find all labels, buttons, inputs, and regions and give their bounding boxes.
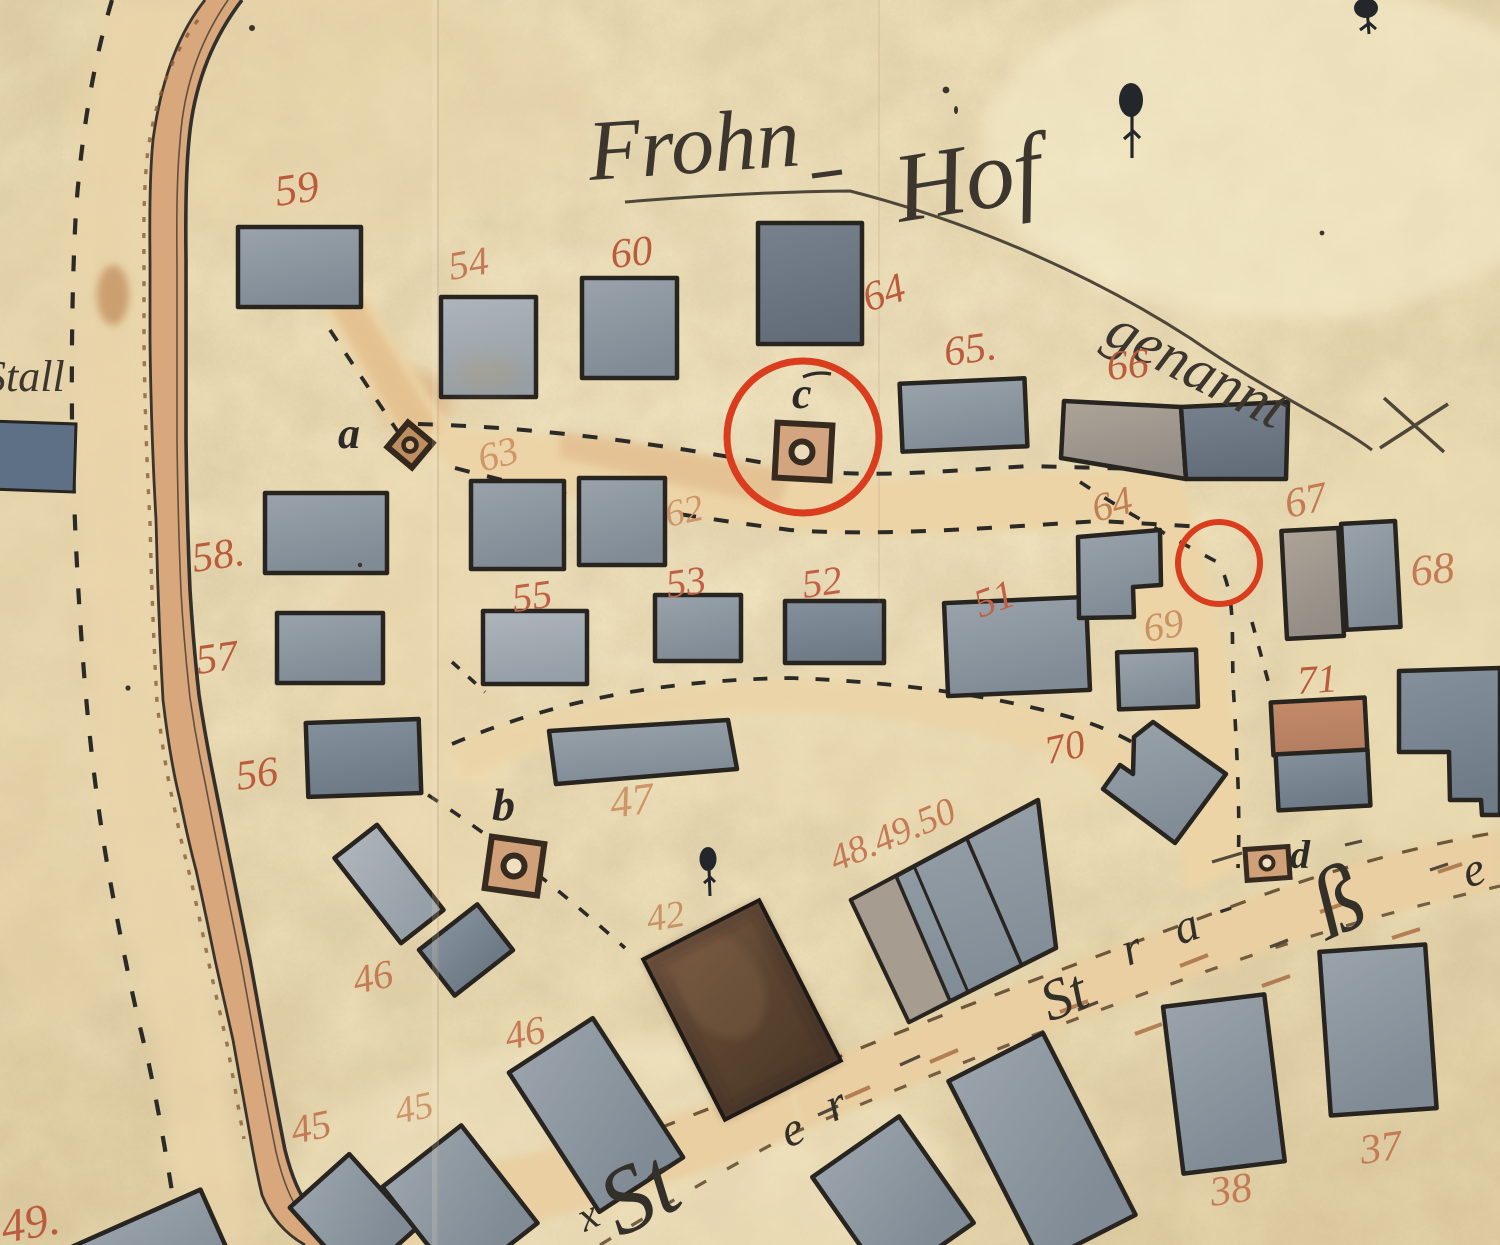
svg-text:71: 71	[1295, 655, 1338, 703]
svg-text:56: 56	[233, 749, 281, 800]
svg-text:a: a	[338, 409, 360, 458]
svg-text:55: 55	[509, 571, 555, 621]
svg-text:53: 53	[663, 557, 709, 607]
svg-text:59: 59	[272, 161, 322, 216]
svg-text:66: 66	[1105, 340, 1151, 389]
svg-text:37: 37	[1356, 1122, 1407, 1174]
svg-text:38: 38	[1206, 1165, 1255, 1217]
svg-text:49.: 49.	[0, 1192, 64, 1245]
svg-text:58.: 58.	[189, 529, 247, 582]
svg-text:Frohn: Frohn	[584, 88, 803, 199]
svg-text:69: 69	[1140, 600, 1187, 651]
svg-text:60: 60	[608, 228, 655, 278]
svg-text:Stall: Stall	[0, 352, 65, 401]
svg-text:b: b	[492, 779, 515, 830]
svg-text:54: 54	[445, 238, 492, 289]
svg-text:42: 42	[643, 893, 688, 941]
svg-text:68: 68	[1408, 543, 1457, 596]
svg-text:52: 52	[799, 557, 845, 607]
svg-text:65.: 65.	[941, 323, 999, 376]
svg-text:47: 47	[607, 773, 659, 828]
svg-text:57: 57	[193, 632, 243, 684]
